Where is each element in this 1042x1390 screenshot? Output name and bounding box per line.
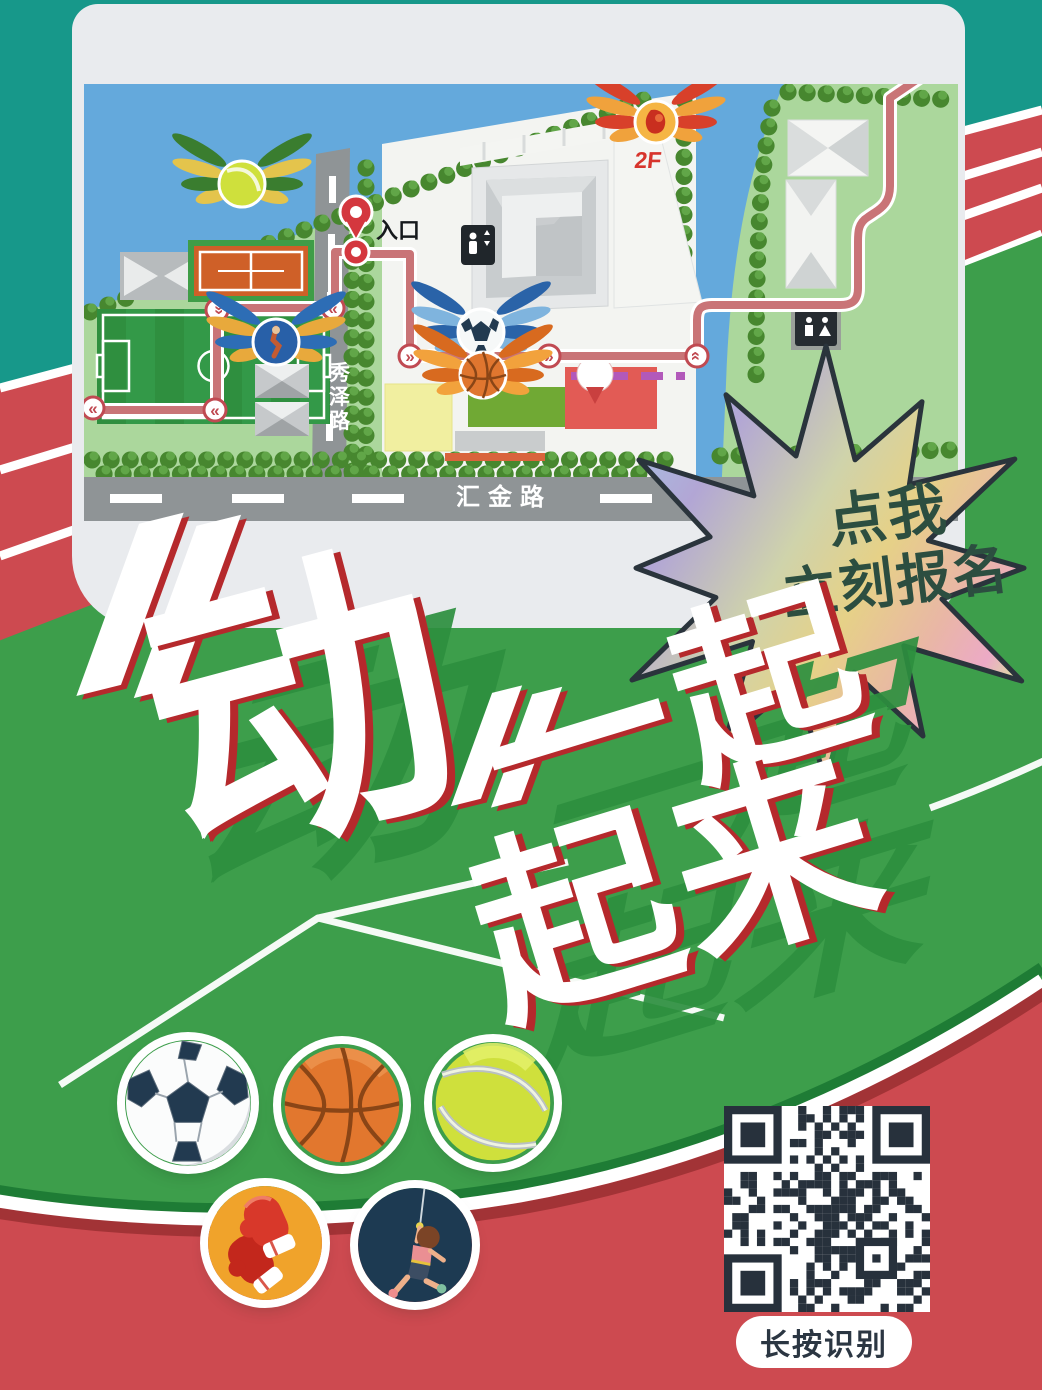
boxing-gloves-icon [208,1186,322,1300]
gray-slab [455,431,545,451]
entrance-label: 入口 [376,218,420,243]
tennis-ball-icon [432,1042,554,1164]
basketball-icon [281,1044,403,1166]
road-label-xiuze: 秀泽路 [328,362,351,433]
svg-text:«: « [210,401,219,420]
soccer-ball-icon [125,1040,251,1166]
svg-text:»: » [405,347,414,366]
svg-text:«: « [88,399,97,418]
road-label-huijin: 汇金路 [456,483,552,511]
qr-code[interactable] [724,1106,930,1312]
long-press-label[interactable]: 长按识别 [736,1316,912,1368]
floor-2f-label: 2F [633,147,663,173]
poster-root: « « « « » » « [0,0,1042,1390]
elevator-icon [461,225,495,265]
orange-strip [445,453,545,461]
rock-climbing-icon [358,1188,472,1302]
